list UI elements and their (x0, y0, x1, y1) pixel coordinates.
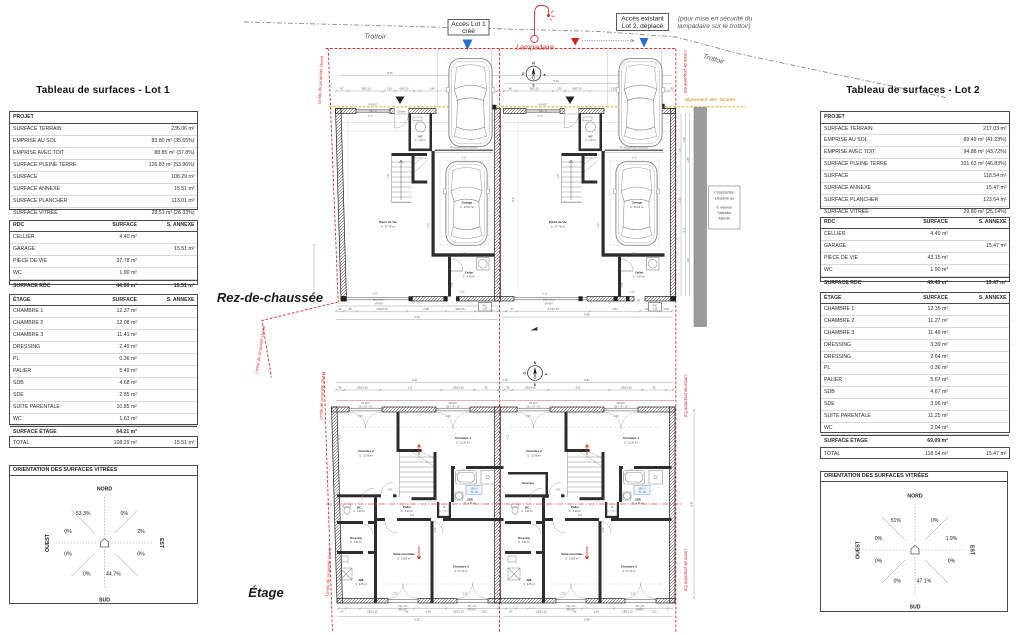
svg-text:1.00: 1.00 (481, 609, 487, 613)
svg-text:85: 85 (349, 307, 352, 311)
svg-text:30: 30 (671, 87, 674, 91)
svg-text:Trottoir: Trottoir (364, 33, 387, 41)
svg-text:Lot 2, déplacé: Lot 2, déplacé (622, 23, 664, 30)
svg-text:96: 96 (485, 386, 488, 390)
svg-text:7.40: 7.40 (502, 378, 508, 382)
svg-text:Limite de propriété Est: Limite de propriété Est (684, 549, 689, 593)
svg-text:N: N (534, 361, 537, 365)
svg-text:Entrée: Entrée (398, 109, 406, 113)
svg-text:2.45: 2.45 (686, 157, 690, 163)
svg-text:créé: créé (462, 28, 475, 35)
svg-text:3.01: 3.01 (575, 386, 581, 390)
svg-text:existante au: existante au (715, 197, 734, 201)
svg-text:O: O (523, 371, 526, 375)
svg-text:lampadaire sur le trottoir): lampadaire sur le trottoir) (677, 23, 750, 30)
svg-text:Limite de propriété Ouest: Limite de propriété Ouest (317, 55, 325, 104)
svg-text:2.77: 2.77 (682, 227, 686, 233)
svg-text:1.80/1.15: 1.80/1.15 (535, 609, 547, 613)
svg-text:60/2.15: 60/2.15 (400, 87, 409, 91)
svg-text:1.20: 1.20 (386, 87, 392, 91)
svg-text:Salvador: Salvador (717, 211, 732, 215)
svg-text:O: O (522, 72, 525, 76)
svg-text:(pour mise en sécurité du: (pour mise en sécurité du (678, 16, 753, 23)
svg-text:3.66/2.15: 3.66/2.15 (376, 307, 388, 311)
svg-text:1.80/1.65: 1.80/1.65 (620, 386, 632, 390)
svg-text:1.40: 1.40 (429, 87, 435, 91)
svg-text:3.44/2.15: 3.44/2.15 (547, 307, 559, 311)
svg-text:1.00: 1.00 (651, 609, 657, 613)
svg-text:1.06: 1.06 (663, 307, 669, 311)
svg-text:1.44: 1.44 (593, 609, 599, 613)
svg-text:3.11: 3.11 (407, 386, 413, 390)
svg-text:8.98: 8.98 (584, 313, 590, 317)
svg-text:87: 87 (510, 609, 513, 613)
svg-text:8.20: 8.20 (414, 618, 420, 622)
svg-text:1.80/1.65: 1.80/1.65 (452, 386, 464, 390)
svg-text:2.38: 2.38 (423, 307, 429, 311)
svg-text:96: 96 (507, 386, 510, 390)
svg-text:Allende: Allende (718, 217, 730, 221)
svg-text:1.25: 1.25 (682, 137, 686, 143)
svg-text:97: 97 (341, 87, 344, 91)
svg-text:Dressing: Dressing (522, 481, 534, 485)
svg-text:1.40: 1.40 (425, 609, 431, 613)
svg-text:96: 96 (653, 386, 656, 390)
svg-text:Accès Lot 1: Accès Lot 1 (451, 21, 486, 28)
svg-text:90/2.15: 90/2.15 (362, 87, 371, 91)
svg-text:96: 96 (339, 386, 342, 390)
svg-text:Accès existant: Accès existant (621, 16, 664, 23)
svg-text:2.35: 2.35 (677, 197, 681, 203)
svg-text:5.45: 5.45 (387, 71, 393, 75)
svg-text:84: 84 (341, 609, 344, 613)
svg-text:Limite de propriété Ouest: Limite de propriété Ouest (254, 325, 267, 374)
svg-text:Alignement des façades: Alignement des façades (683, 97, 736, 102)
svg-text:1.53: 1.53 (610, 87, 616, 91)
svg-text:9, avenue: 9, avenue (716, 206, 732, 210)
svg-text:Lampadaire: Lampadaire (516, 43, 554, 52)
svg-text:8.41: 8.41 (412, 378, 418, 382)
svg-text:5.42: 5.42 (553, 79, 559, 83)
svg-text:1.80/1.15: 1.80/1.15 (366, 609, 378, 613)
svg-text:1.80/1.65: 1.80/1.65 (356, 386, 368, 390)
svg-text:N: N (532, 62, 535, 66)
svg-text:6.97: 6.97 (690, 501, 694, 507)
svg-text:8.20: 8.20 (414, 315, 420, 319)
svg-text:Construction: Construction (714, 191, 734, 195)
svg-text:96/2.15: 96/2.15 (456, 307, 465, 311)
svg-text:1.80/1.65: 1.80/1.65 (524, 386, 536, 390)
svg-text:30: 30 (677, 148, 681, 151)
svg-text:Trottoir: Trottoir (702, 53, 725, 66)
svg-text:1.80/1.15: 1.80/1.15 (621, 609, 633, 613)
svg-text:1.53: 1.53 (556, 87, 562, 91)
svg-text:1.80/1.15: 1.80/1.15 (452, 609, 464, 613)
svg-text:41: 41 (339, 307, 342, 311)
svg-text:90/2.15: 90/2.15 (573, 87, 582, 91)
svg-text:2.54: 2.54 (612, 307, 618, 311)
svg-text:96: 96 (509, 87, 512, 91)
svg-text:Rez-de-chaussée: Rez-de-chaussée (217, 290, 323, 305)
svg-text:3.97: 3.97 (686, 257, 690, 263)
svg-text:Limite de propriété Est: Limite de propriété Est (683, 51, 688, 95)
svg-text:Étage: Étage (248, 585, 283, 600)
svg-text:8.98: 8.98 (584, 618, 590, 622)
svg-text:Limite de propriété Est: Limite de propriété Est (684, 375, 689, 419)
svg-text:8.97: 8.97 (584, 378, 590, 382)
svg-text:97: 97 (511, 307, 514, 311)
